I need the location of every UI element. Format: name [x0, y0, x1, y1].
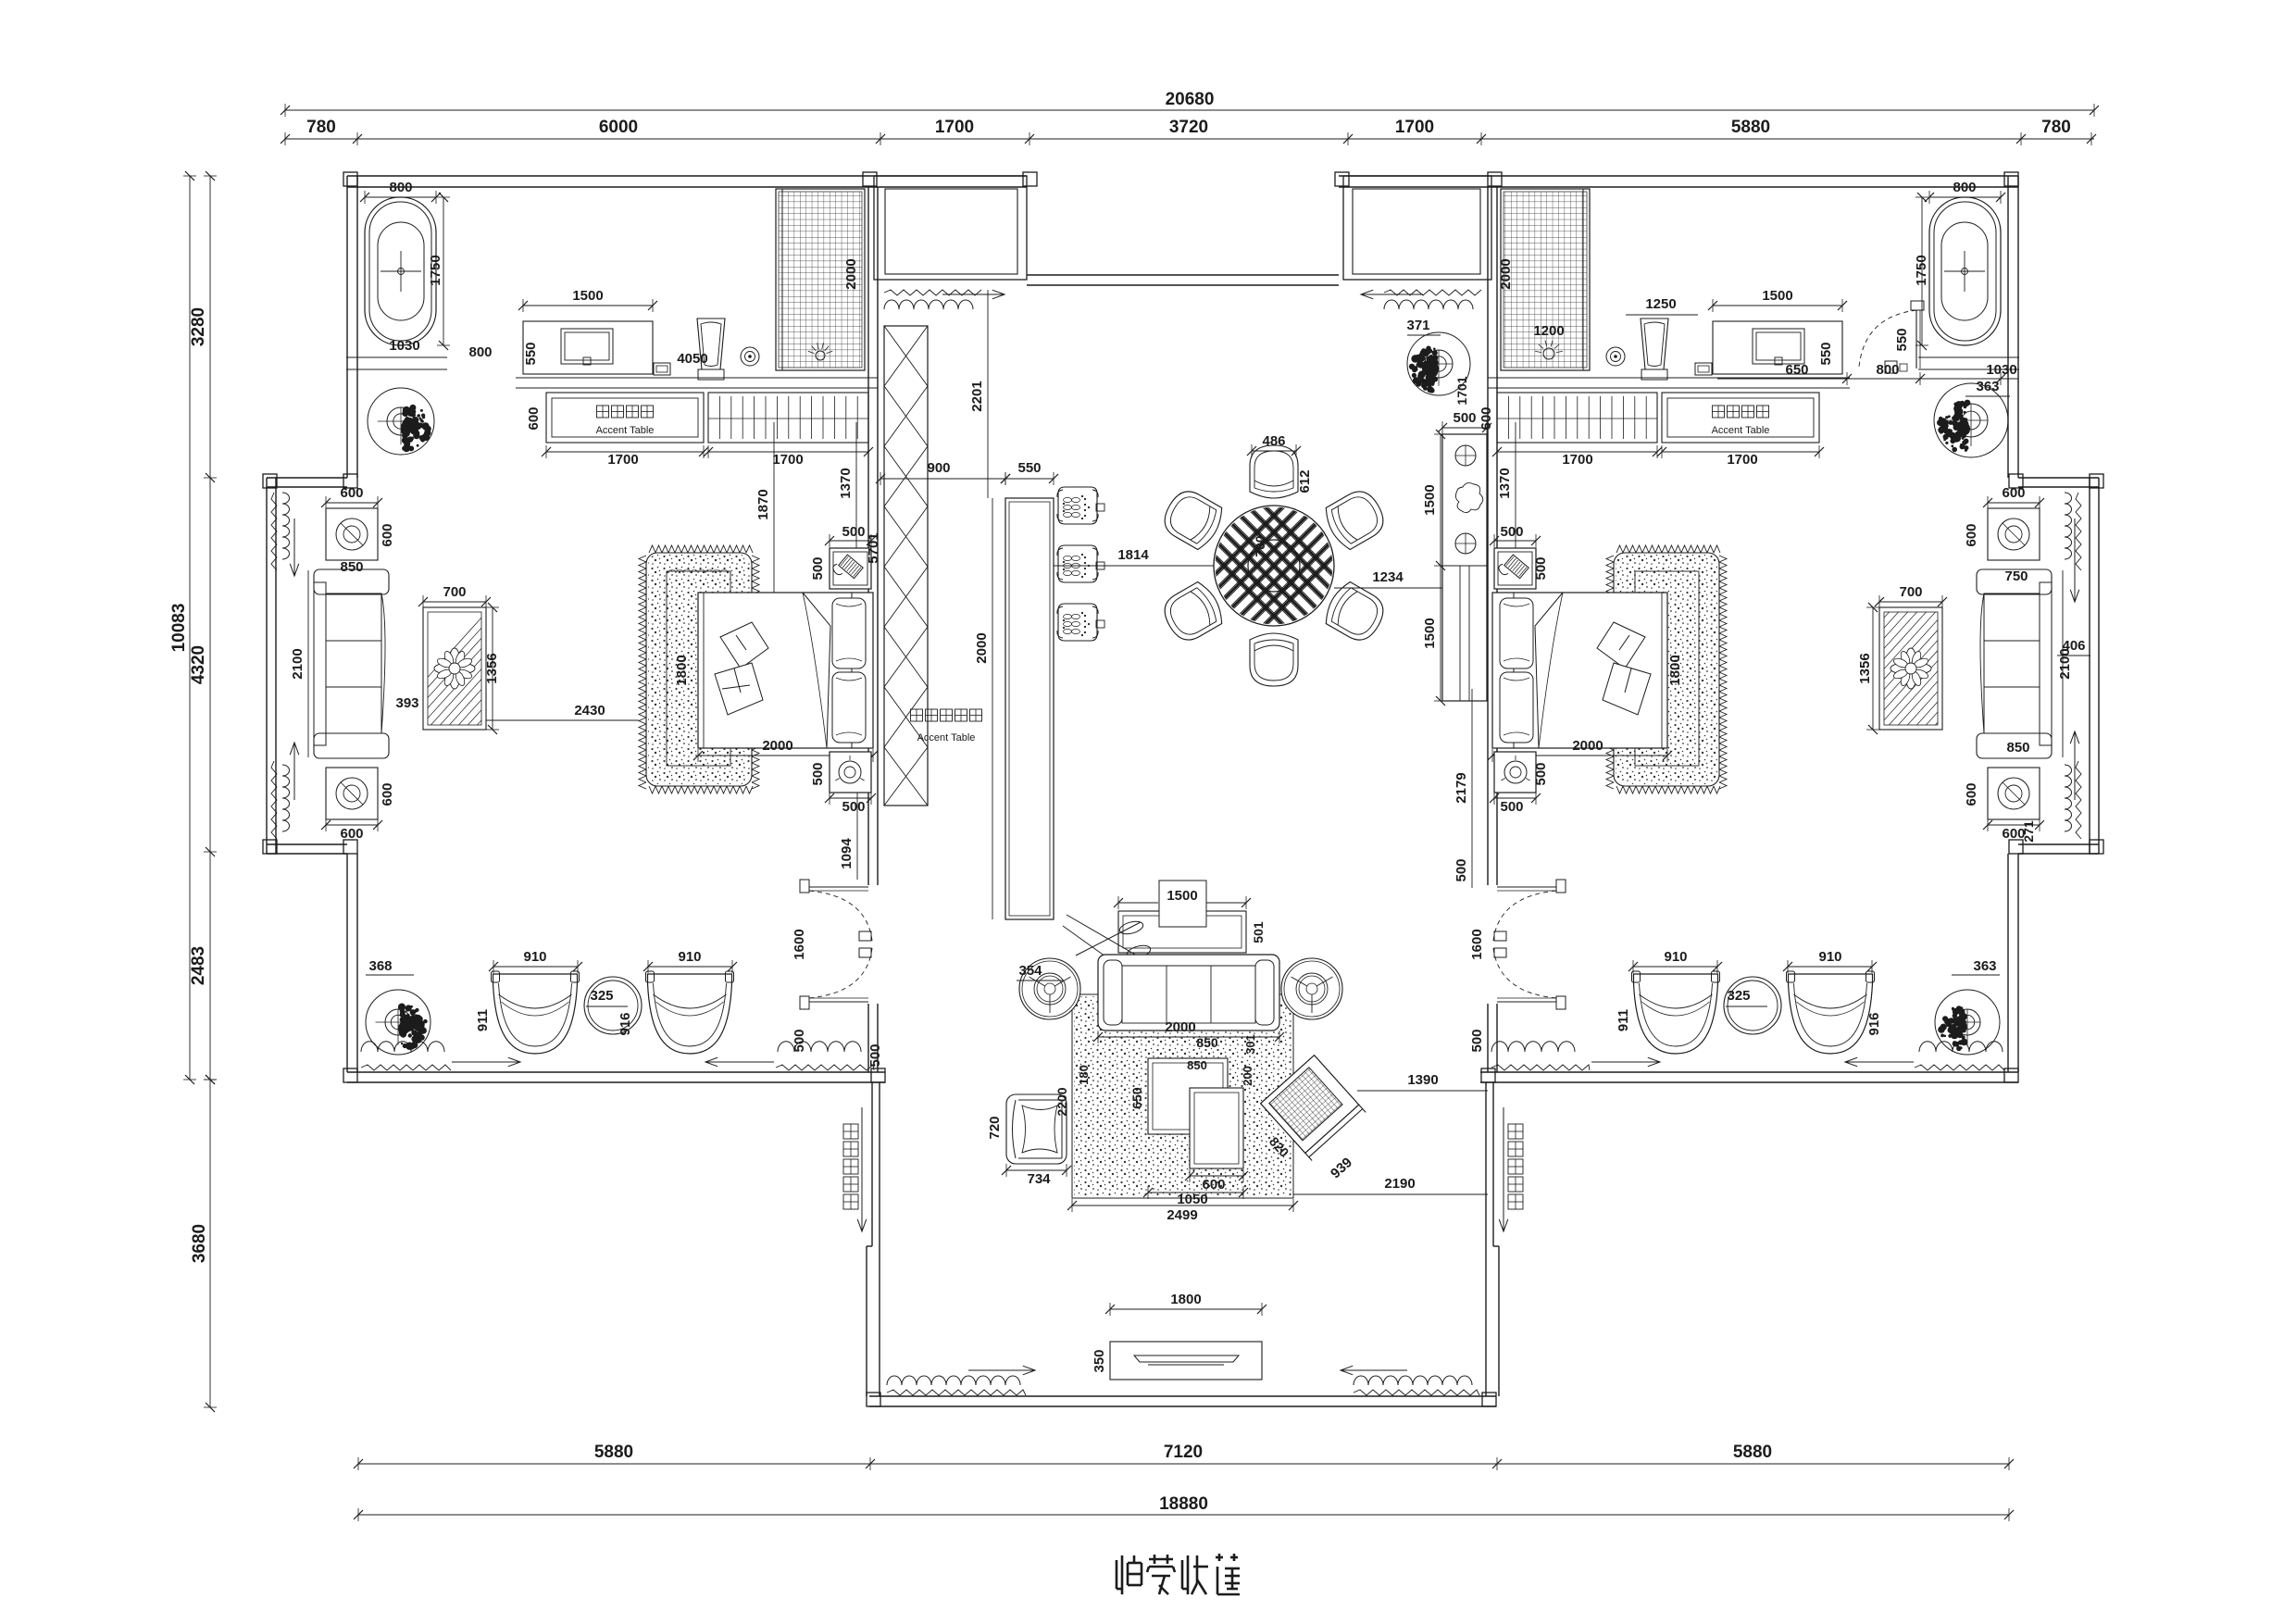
svg-text:2179: 2179 — [1454, 772, 1469, 803]
svg-text:700: 700 — [1253, 535, 1267, 557]
svg-text:2100: 2100 — [290, 648, 306, 679]
svg-text:600: 600 — [380, 523, 395, 546]
svg-text:1500: 1500 — [1422, 484, 1438, 515]
svg-text:1356: 1356 — [484, 653, 500, 683]
svg-text:1356: 1356 — [1857, 653, 1873, 683]
svg-text:354: 354 — [1018, 963, 1042, 979]
svg-text:1390: 1390 — [1407, 1072, 1438, 1088]
svg-text:5880: 5880 — [1731, 118, 1770, 137]
svg-text:1600: 1600 — [1469, 929, 1485, 959]
svg-text:734: 734 — [1027, 1171, 1051, 1187]
svg-text:911: 911 — [475, 1009, 491, 1031]
svg-text:900: 900 — [927, 460, 950, 476]
svg-text:200: 200 — [1241, 1066, 1254, 1086]
svg-text:1050: 1050 — [1177, 1192, 1207, 1207]
svg-text:1030: 1030 — [389, 338, 419, 354]
svg-text:650: 650 — [1785, 362, 1808, 378]
svg-text:500: 500 — [1469, 1029, 1485, 1052]
svg-text:3720: 3720 — [1169, 118, 1208, 137]
svg-text:1750: 1750 — [428, 255, 443, 285]
svg-text:600: 600 — [2002, 485, 2025, 501]
svg-text:7120: 7120 — [1164, 1443, 1203, 1462]
svg-text:2190: 2190 — [1384, 1176, 1415, 1192]
svg-text:1870: 1870 — [755, 489, 771, 519]
svg-text:500: 500 — [842, 799, 865, 815]
svg-text:1234: 1234 — [1372, 569, 1404, 585]
svg-text:1800: 1800 — [1170, 1292, 1201, 1307]
svg-text:4320: 4320 — [189, 645, 208, 684]
svg-text:350: 350 — [1092, 1349, 1107, 1372]
svg-text:1250: 1250 — [1645, 296, 1676, 312]
svg-text:550: 550 — [1017, 460, 1041, 476]
svg-text:500: 500 — [810, 556, 826, 580]
svg-text:500: 500 — [792, 1029, 807, 1052]
svg-text:6000: 6000 — [599, 118, 638, 137]
svg-text:20680: 20680 — [1166, 90, 1215, 109]
svg-text:550: 550 — [1894, 328, 1910, 351]
svg-text:910: 910 — [678, 949, 701, 965]
svg-text:1200: 1200 — [1533, 323, 1564, 339]
svg-text:910: 910 — [523, 949, 546, 965]
svg-text:5701: 5701 — [866, 532, 881, 563]
svg-text:1700: 1700 — [1395, 118, 1434, 137]
svg-text:1700: 1700 — [772, 452, 803, 468]
svg-text:501: 501 — [1251, 921, 1266, 943]
svg-text:1500: 1500 — [1422, 618, 1438, 648]
svg-text:910: 910 — [1664, 949, 1687, 965]
svg-text:Accent Table: Accent Table — [596, 425, 655, 436]
svg-text:600: 600 — [1202, 1177, 1225, 1193]
svg-text:910: 910 — [1818, 949, 1841, 965]
svg-text:271: 271 — [2021, 820, 2036, 843]
svg-text:Accent Table: Accent Table — [1712, 425, 1770, 436]
svg-text:406: 406 — [2062, 638, 2085, 654]
svg-text:800: 800 — [1953, 180, 1976, 195]
svg-text:1500: 1500 — [572, 288, 603, 304]
svg-text:3280: 3280 — [189, 307, 208, 346]
svg-text:916: 916 — [618, 1012, 633, 1035]
svg-text:325: 325 — [1727, 988, 1750, 1004]
svg-text:600: 600 — [1964, 782, 1979, 806]
svg-text:2499: 2499 — [1167, 1207, 1197, 1223]
svg-text:363: 363 — [1976, 379, 1999, 394]
svg-text:500: 500 — [1533, 762, 1549, 785]
svg-text:800: 800 — [389, 180, 412, 195]
svg-text:650: 650 — [1129, 1087, 1144, 1109]
svg-text:850: 850 — [2006, 740, 2029, 756]
svg-text:3680: 3680 — [190, 1224, 209, 1263]
svg-text:2000: 2000 — [762, 738, 792, 754]
svg-text:911: 911 — [1616, 1009, 1631, 1031]
svg-text:500: 500 — [1533, 556, 1549, 580]
svg-text:850: 850 — [1196, 1035, 1218, 1050]
svg-text:600: 600 — [1479, 406, 1494, 430]
svg-text:720: 720 — [987, 1116, 1003, 1139]
svg-text:500: 500 — [867, 1043, 883, 1067]
svg-text:2000: 2000 — [1165, 1019, 1195, 1035]
svg-text:1750: 1750 — [1914, 255, 1929, 285]
svg-text:2201: 2201 — [969, 381, 985, 411]
svg-text:916: 916 — [1866, 1012, 1882, 1035]
svg-text:600: 600 — [380, 782, 395, 806]
svg-text:1500: 1500 — [1762, 288, 1792, 304]
svg-text:500: 500 — [1500, 524, 1523, 540]
svg-text:2000: 2000 — [1572, 738, 1603, 754]
svg-text:325: 325 — [590, 988, 613, 1004]
svg-text:5880: 5880 — [1733, 1443, 1772, 1462]
svg-text:1600: 1600 — [792, 929, 807, 959]
svg-text:500: 500 — [810, 762, 826, 785]
svg-text:1700: 1700 — [935, 118, 974, 137]
svg-text:750: 750 — [2004, 568, 2028, 584]
svg-text:1800: 1800 — [674, 655, 690, 685]
svg-text:1700: 1700 — [607, 452, 638, 468]
svg-text:600: 600 — [340, 485, 363, 501]
svg-text:18880: 18880 — [1159, 1494, 1208, 1514]
svg-text:600: 600 — [526, 406, 542, 430]
svg-text:550: 550 — [1818, 342, 1834, 365]
svg-text:800: 800 — [468, 344, 492, 360]
svg-text:850: 850 — [340, 559, 363, 575]
svg-text:1800: 1800 — [1667, 655, 1683, 685]
svg-text:500: 500 — [842, 524, 865, 540]
svg-text:1370: 1370 — [1497, 468, 1513, 498]
svg-text:700: 700 — [1899, 584, 1922, 600]
svg-text:500: 500 — [1500, 799, 1523, 815]
svg-text:368: 368 — [368, 958, 392, 974]
svg-text:Accent Table: Accent Table — [917, 732, 976, 743]
svg-text:2200: 2200 — [1054, 1087, 1069, 1116]
svg-text:363: 363 — [1973, 958, 1996, 974]
svg-text:371: 371 — [1406, 318, 1429, 333]
svg-text:1094: 1094 — [839, 838, 855, 869]
svg-text:780: 780 — [306, 118, 336, 137]
svg-text:1030: 1030 — [1986, 362, 2016, 378]
svg-text:2000: 2000 — [1498, 258, 1514, 289]
svg-text:1814: 1814 — [1117, 547, 1149, 563]
svg-text:486: 486 — [1262, 433, 1285, 449]
svg-text:780: 780 — [2041, 118, 2071, 137]
svg-text:10083: 10083 — [169, 604, 189, 653]
svg-text:2000: 2000 — [843, 258, 859, 289]
svg-text:612: 612 — [1297, 469, 1313, 493]
svg-text:1700: 1700 — [1727, 452, 1757, 468]
svg-text:5880: 5880 — [594, 1443, 633, 1462]
svg-text:850: 850 — [1187, 1058, 1207, 1072]
svg-text:700: 700 — [443, 584, 466, 600]
svg-text:2000: 2000 — [974, 632, 990, 663]
svg-text:500: 500 — [1453, 410, 1476, 426]
svg-text:1500: 1500 — [1167, 888, 1197, 904]
svg-text:1700: 1700 — [1562, 452, 1592, 468]
svg-text:393: 393 — [395, 695, 418, 711]
svg-text:550: 550 — [523, 342, 539, 365]
svg-text:180: 180 — [1077, 1065, 1091, 1085]
svg-text:1370: 1370 — [838, 468, 854, 498]
svg-text:1701: 1701 — [1454, 376, 1469, 405]
svg-text:800: 800 — [1876, 362, 1899, 378]
svg-text:2483: 2483 — [189, 946, 208, 985]
svg-text:2430: 2430 — [574, 703, 605, 718]
svg-text:600: 600 — [1964, 523, 1979, 546]
svg-text:500: 500 — [1454, 858, 1469, 881]
svg-text:600: 600 — [340, 826, 363, 842]
svg-text:301: 301 — [1243, 1034, 1257, 1055]
